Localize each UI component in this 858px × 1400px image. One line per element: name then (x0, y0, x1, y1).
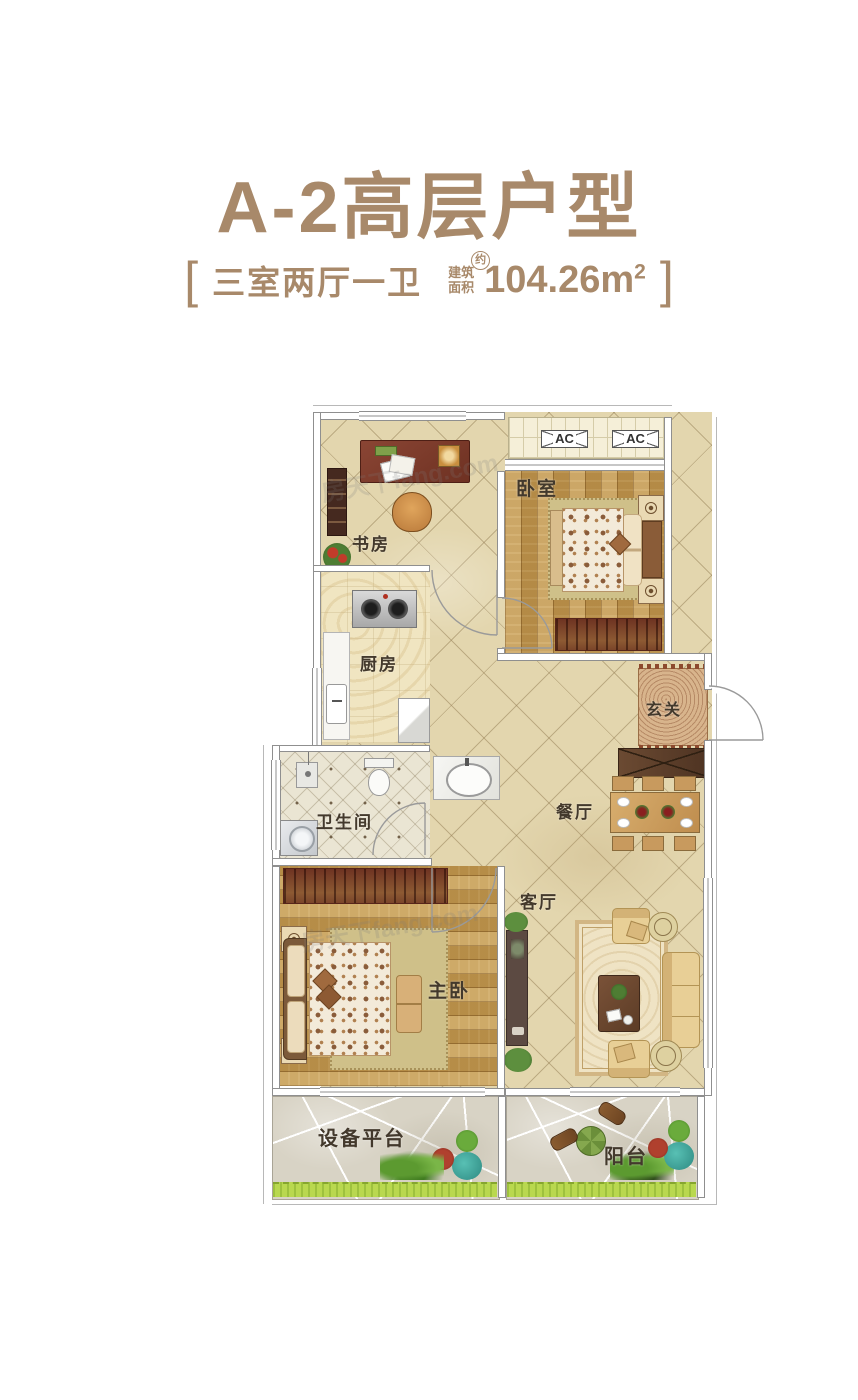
page-title: A-2高层户型 (0, 148, 858, 253)
window-study-top (359, 411, 466, 421)
living-plant-top (504, 912, 528, 932)
plate (680, 797, 693, 807)
tv-item (512, 1027, 524, 1035)
plate (617, 818, 630, 828)
room-label-equipment: 设备平台 (318, 1122, 406, 1151)
equip-plant-teal (452, 1152, 482, 1180)
table-plant (611, 984, 627, 1000)
toilet-tank (364, 758, 394, 768)
window-bath-left (271, 760, 281, 850)
window-master-bottom (320, 1087, 485, 1097)
stove (352, 590, 417, 628)
wall-balcony-right (697, 1096, 705, 1198)
shower-head (296, 762, 318, 788)
armchair-bottom (608, 1040, 650, 1078)
room-label-living: 客厅 (520, 888, 558, 913)
wall-bedroom-left-upper (497, 471, 505, 598)
tv-plant (511, 939, 524, 959)
washer-drum (289, 826, 315, 852)
dining-chair-3 (674, 776, 696, 791)
sink-tap (332, 700, 342, 702)
master-pillow-2 (287, 1001, 305, 1053)
outer-line-right (716, 417, 717, 1204)
wall-balcony-divider (498, 1096, 506, 1198)
entry-rug-fringe-top (639, 664, 707, 669)
dining-chair-5 (642, 836, 664, 851)
table-cup (623, 1015, 633, 1025)
wall-master-left (272, 866, 280, 1096)
sofa (662, 952, 700, 1048)
wall-bath-bottom (272, 858, 432, 866)
window-living-bottom (570, 1087, 680, 1097)
master-curtain-valance (283, 868, 448, 904)
floorplan-flyer: { "header": { "title": "A-2高层户型", "spec"… (0, 0, 858, 1400)
wall-master-right (497, 866, 505, 1096)
toilet-bowl (368, 769, 390, 796)
dining-chair-2 (642, 776, 664, 791)
area-label-bottom: 面积 (448, 280, 474, 295)
side-table-top (648, 912, 678, 942)
dining-chair-4 (612, 836, 634, 851)
basin (446, 763, 492, 797)
washbasin-counter (433, 756, 500, 800)
bedroom-bed-headboard (642, 521, 662, 578)
plate (680, 818, 693, 828)
centerpiece-2 (661, 805, 675, 819)
master-bench (396, 975, 422, 1033)
shower-hose (308, 751, 309, 765)
wall-study-bottom (313, 565, 430, 572)
window-bedroom-top (505, 459, 664, 471)
living-plant-bottom (504, 1048, 532, 1072)
bookshelf (327, 468, 347, 536)
outer-line-left (263, 745, 264, 1204)
stove-knob (383, 594, 388, 599)
bedroom-side-rug (550, 510, 563, 586)
ac-unit-2-label: AC (624, 431, 647, 447)
room-label-master: 主卧 (428, 976, 470, 1003)
wall-kitchen-bottom (272, 745, 430, 752)
plate (617, 797, 630, 807)
washing-machine (280, 820, 318, 856)
master-pillow-1 (287, 945, 305, 997)
area-number: 104.26m (484, 259, 634, 301)
burner-left (361, 599, 381, 619)
ac-unit-1: AC (541, 430, 588, 448)
armchair-bottom-cushion (613, 1043, 635, 1063)
bracket-left: [ (184, 257, 198, 303)
room-label-study: 书房 (352, 530, 390, 555)
spec-row: [ 三室两厅一卫 建筑 面积 约 104.26m2 ] (0, 256, 858, 304)
entry-console (618, 748, 710, 778)
balcony-table (576, 1126, 606, 1156)
balcony-plant-teal (664, 1142, 694, 1170)
window-living-right (703, 878, 713, 1068)
desk-papers-2 (389, 454, 416, 476)
room-label-kitchen: 厨房 (360, 650, 398, 675)
room-label-bedroom: 卧室 (516, 474, 558, 501)
basin-tap (465, 758, 469, 766)
room-label-balcony: 阳台 (604, 1140, 648, 1169)
room-label-bathroom: 卫生间 (316, 808, 373, 833)
desk-lamp (438, 445, 460, 467)
ac-unit-2: AC (612, 430, 659, 448)
ac-unit-1-label: AC (553, 431, 576, 447)
side-table-bottom (650, 1040, 682, 1072)
dining-chair-6 (674, 836, 696, 851)
fridge (398, 698, 430, 743)
bracket-right: ] (660, 257, 674, 303)
area-value: 104.26m2 (484, 259, 646, 302)
entrance-door-arc (709, 686, 763, 740)
equipment-grass (273, 1182, 497, 1197)
study-chair (392, 492, 432, 532)
room-label-dining: 餐厅 (556, 798, 594, 823)
bedroom-dresser (555, 618, 662, 651)
outer-line-top (313, 405, 672, 406)
dining-chair-1 (612, 776, 634, 791)
dining-table (610, 792, 700, 833)
layout-spec-text: 三室两厅一卫 (212, 256, 422, 304)
burner-right (388, 599, 408, 619)
armchair-top-cushion (626, 921, 648, 942)
wall-bedroom-bottom (497, 653, 712, 661)
master-headboard (283, 938, 307, 1060)
equip-fern (380, 1150, 444, 1180)
floorplan: AC AC (260, 398, 750, 1210)
balcony-plant-red (648, 1138, 668, 1158)
centerpiece-1 (635, 805, 649, 819)
balcony-chair-1 (548, 1126, 580, 1152)
shower-dot (305, 771, 311, 777)
balcony-grass (507, 1182, 696, 1197)
table-paper (606, 1009, 622, 1023)
area-superscript: 2 (634, 260, 646, 283)
wall-bedroom-right (664, 417, 672, 658)
kitchen-sink (326, 684, 347, 724)
coffee-table (598, 975, 640, 1032)
outer-line-bottom (272, 1204, 717, 1205)
room-label-entry: 玄关 (646, 696, 682, 720)
equip-plant-green (456, 1130, 478, 1152)
tv-cabinet (506, 930, 528, 1046)
wall-right-upper (704, 653, 712, 690)
area-label: 建筑 面积 约 (448, 265, 474, 295)
ac-platform: AC AC (508, 417, 670, 459)
window-kitchen-left (312, 668, 322, 746)
armchair-top (612, 908, 650, 944)
balcony-plant-green (668, 1120, 690, 1142)
area-label-top: 建筑 (448, 265, 474, 280)
